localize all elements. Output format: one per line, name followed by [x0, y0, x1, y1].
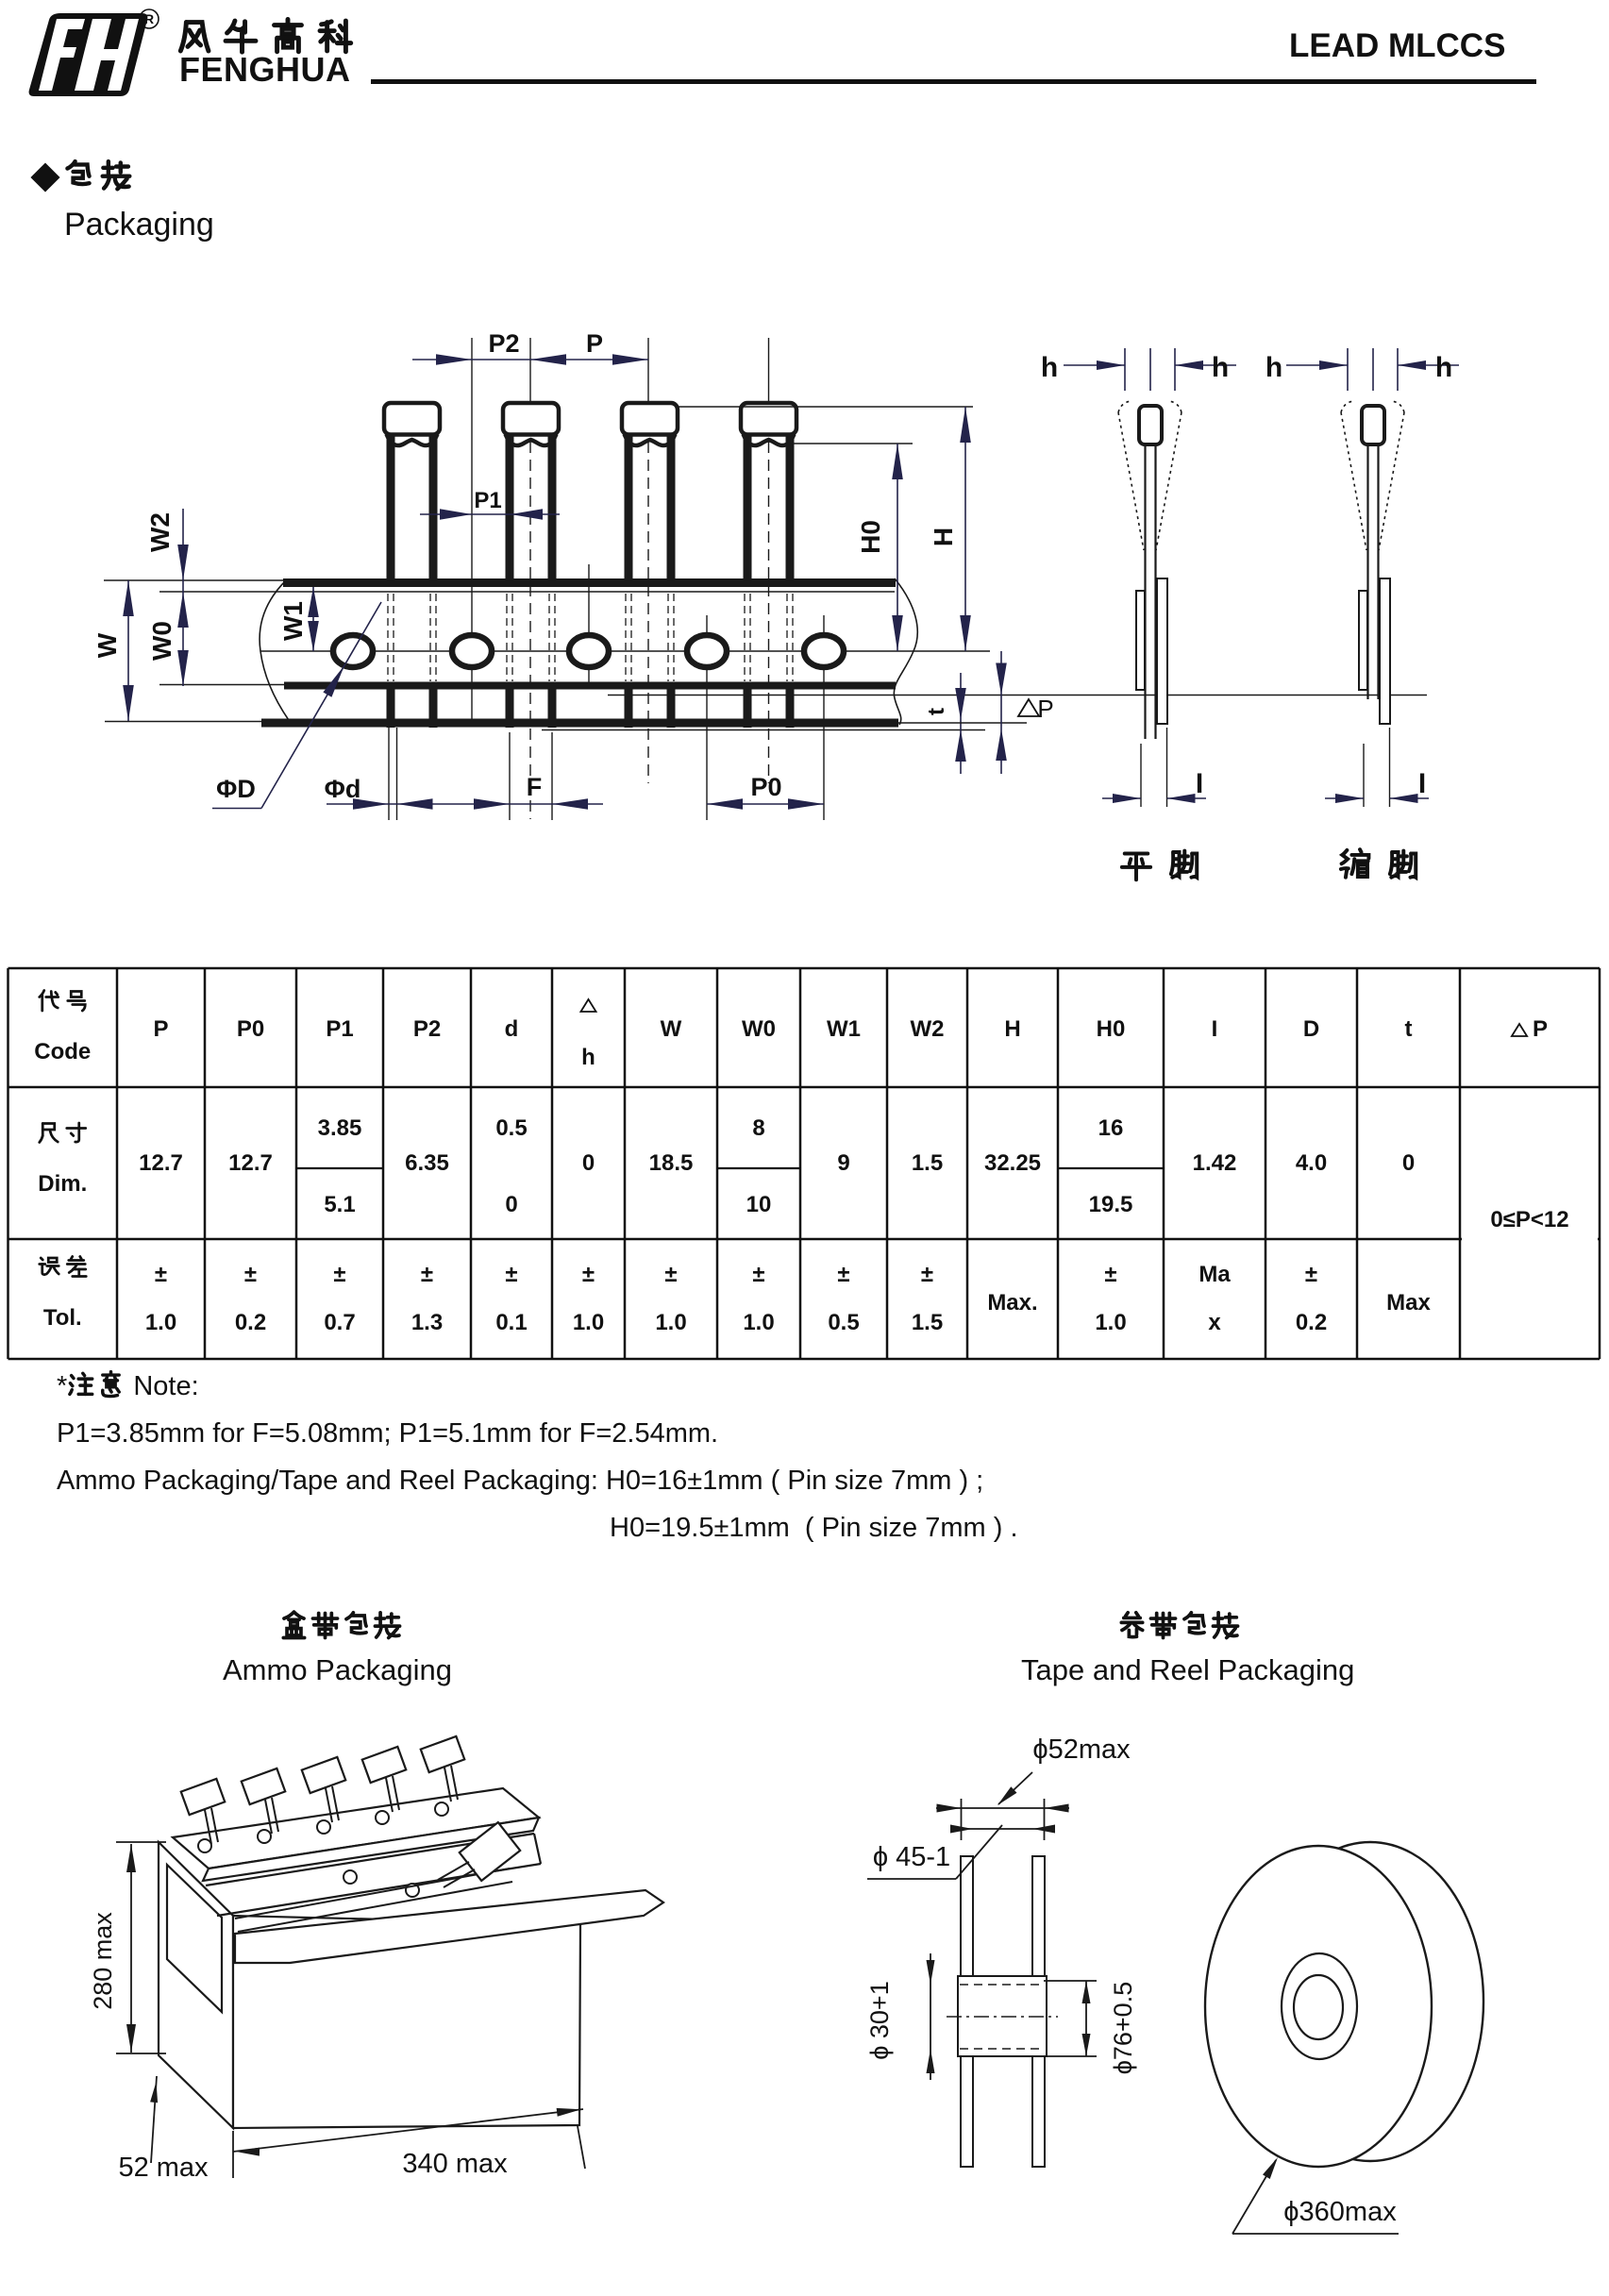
svg-text:H0: H0 — [1097, 1016, 1126, 1042]
svg-text:I: I — [1212, 1016, 1218, 1042]
svg-text:18.5: 18.5 — [649, 1150, 694, 1176]
svg-text:ϕ52max: ϕ52max — [1032, 1735, 1131, 1765]
svg-text:Max.: Max. — [987, 1290, 1037, 1316]
svg-text:W0: W0 — [742, 1016, 776, 1042]
svg-text:ϕ360max: ϕ360max — [1283, 2197, 1397, 2227]
svg-text:±: ± — [155, 1262, 167, 1287]
svg-text:0: 0 — [1402, 1150, 1415, 1176]
svg-text:W1: W1 — [827, 1016, 861, 1042]
svg-text:340 max: 340 max — [402, 2149, 508, 2179]
svg-text:8: 8 — [752, 1115, 764, 1141]
svg-text:1.0: 1.0 — [1095, 1310, 1126, 1335]
svg-text:W2: W2 — [911, 1016, 945, 1042]
svg-text:1.5: 1.5 — [912, 1310, 943, 1335]
svg-text:±: ± — [582, 1262, 595, 1287]
svg-text:12.7: 12.7 — [139, 1150, 183, 1176]
svg-text:P2: P2 — [413, 1016, 441, 1042]
svg-text:P0: P0 — [237, 1016, 264, 1042]
svg-text:±: ± — [1305, 1262, 1317, 1287]
svg-text:±: ± — [1104, 1262, 1116, 1287]
svg-text:1.0: 1.0 — [743, 1310, 774, 1335]
svg-text:h: h — [581, 1045, 595, 1070]
svg-text:P: P — [1533, 1016, 1548, 1042]
svg-text:0.1: 0.1 — [495, 1310, 527, 1335]
svg-text:0≤P<12: 0≤P<12 — [1490, 1207, 1568, 1232]
svg-text:ϕ 30+1: ϕ 30+1 — [865, 1981, 894, 2059]
svg-text:1.42: 1.42 — [1193, 1150, 1237, 1176]
svg-text:9: 9 — [837, 1150, 849, 1176]
svg-text:0.5: 0.5 — [495, 1115, 527, 1141]
svg-text:0: 0 — [582, 1150, 595, 1176]
svg-text:D: D — [1303, 1016, 1319, 1042]
svg-text:ϕ76+0.5: ϕ76+0.5 — [1109, 1982, 1137, 2074]
svg-text:W: W — [661, 1016, 682, 1042]
svg-text:10: 10 — [746, 1192, 772, 1217]
svg-text:±: ± — [421, 1262, 433, 1287]
svg-text:3.85: 3.85 — [318, 1115, 362, 1141]
svg-text:±: ± — [752, 1262, 764, 1287]
svg-text:0.2: 0.2 — [1296, 1310, 1327, 1335]
svg-text:±: ± — [505, 1262, 517, 1287]
svg-text:±: ± — [664, 1262, 677, 1287]
svg-text:1.5: 1.5 — [912, 1150, 943, 1176]
svg-text:0: 0 — [505, 1192, 517, 1217]
svg-text:Dim.: Dim. — [38, 1171, 87, 1197]
svg-text:12.7: 12.7 — [228, 1150, 273, 1176]
svg-text:H: H — [1004, 1016, 1020, 1042]
svg-text:0.2: 0.2 — [235, 1310, 266, 1335]
svg-text:52 max: 52 max — [118, 2153, 209, 2183]
svg-text:Max: Max — [1386, 1290, 1431, 1316]
svg-text:Tol.: Tol. — [43, 1305, 82, 1331]
svg-text:32.25: 32.25 — [984, 1150, 1041, 1176]
svg-text:1.3: 1.3 — [411, 1310, 443, 1335]
svg-text:0.5: 0.5 — [828, 1310, 859, 1335]
svg-text:0.7: 0.7 — [324, 1310, 355, 1335]
svg-text:±: ± — [333, 1262, 345, 1287]
svg-text:P: P — [153, 1016, 168, 1042]
svg-text:1.0: 1.0 — [655, 1310, 686, 1335]
svg-text:19.5: 19.5 — [1089, 1192, 1133, 1217]
svg-text:P1: P1 — [326, 1016, 353, 1042]
svg-text:Ma: Ma — [1198, 1262, 1231, 1287]
svg-text:4.0: 4.0 — [1296, 1150, 1327, 1176]
svg-text:±: ± — [921, 1262, 933, 1287]
svg-text:1.0: 1.0 — [573, 1310, 604, 1335]
svg-text:d: d — [505, 1016, 519, 1042]
svg-text:5.1: 5.1 — [324, 1192, 355, 1217]
svg-text:Code: Code — [34, 1039, 91, 1064]
svg-text:t: t — [1405, 1016, 1413, 1042]
svg-text:1.0: 1.0 — [145, 1310, 176, 1335]
svg-text:±: ± — [837, 1262, 849, 1287]
svg-text:280 max: 280 max — [89, 1912, 117, 2010]
svg-text:x: x — [1208, 1310, 1221, 1335]
svg-text:ϕ 45-1: ϕ 45-1 — [873, 1842, 950, 1872]
svg-text:6.35: 6.35 — [405, 1150, 449, 1176]
svg-text:16: 16 — [1098, 1115, 1124, 1141]
svg-text:±: ± — [244, 1262, 257, 1287]
